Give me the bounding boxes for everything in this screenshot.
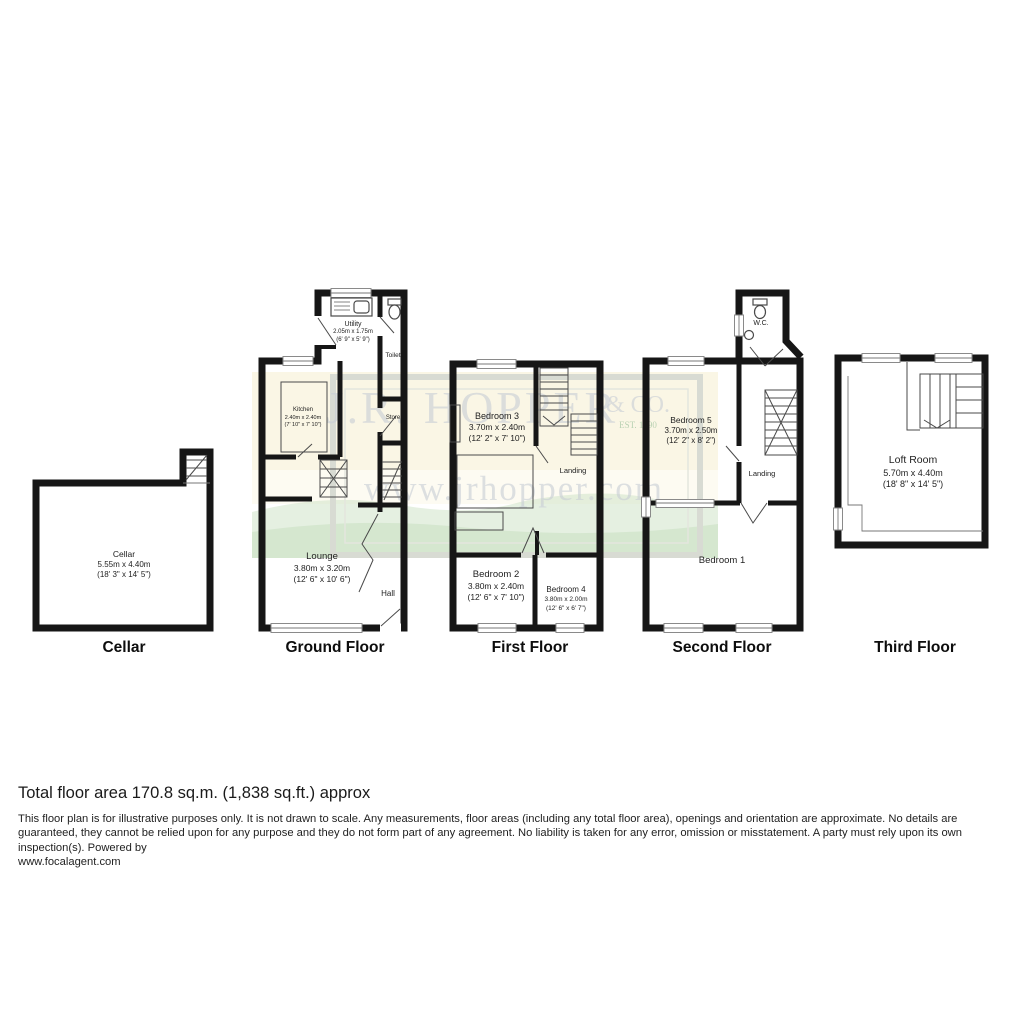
room-name: Toilet bbox=[385, 352, 400, 360]
floor-title-third: Third Floor bbox=[874, 639, 956, 657]
toilet-icon bbox=[388, 299, 401, 319]
third-floor-stairs-icon bbox=[907, 362, 983, 430]
room-imperial: (12' 6" x 7' 10") bbox=[467, 592, 524, 603]
room-imperial: (12' 6" x 6' 7") bbox=[545, 605, 588, 614]
floor-title-first: First Floor bbox=[492, 639, 569, 657]
room-imperial: (12' 2" x 7' 10") bbox=[468, 433, 525, 444]
third-floor-plan bbox=[834, 354, 986, 546]
wc-room-label: W.C. bbox=[753, 320, 768, 329]
cellar-plan bbox=[36, 452, 210, 628]
room-name: Hall bbox=[381, 589, 395, 599]
room-imperial: (12' 6" x 10' 6") bbox=[293, 574, 350, 585]
room-metric: 3.70m x 2.50m bbox=[665, 426, 718, 436]
room-name: Bedroom 3 bbox=[468, 411, 525, 422]
bedroom5-room-label: Bedroom 5 3.70m x 2.50m (12' 2" x 8' 2") bbox=[665, 415, 718, 446]
room-name: Utility bbox=[333, 320, 373, 329]
room-metric: 3.80m x 2.00m bbox=[545, 596, 588, 605]
room-name: Cellar bbox=[97, 549, 151, 560]
room-imperial: (18' 3" x 14' 5") bbox=[97, 570, 151, 580]
room-name: Loft Room bbox=[883, 454, 943, 468]
footer: Total floor area 170.8 sq.m. (1,838 sq.f… bbox=[18, 784, 1010, 869]
floorplan-page: J.R. HOPPER & CO. EST. 1890 www.jrhopper… bbox=[0, 0, 1024, 1024]
room-imperial: (12' 2" x 8' 2") bbox=[665, 436, 718, 446]
watermark-company-suffix: & CO. bbox=[606, 392, 670, 418]
room-metric: 3.70m x 2.40m bbox=[468, 422, 525, 433]
disclaimer-text: This floor plan is for illustrative purp… bbox=[18, 813, 962, 854]
front-door-opening bbox=[380, 624, 401, 633]
wc-toilet-icon bbox=[753, 299, 767, 319]
toilet-room-label: Toilet bbox=[385, 352, 400, 360]
room-name: Landing bbox=[749, 469, 776, 478]
bedroom1-room-label: Bedroom 1 bbox=[699, 555, 745, 567]
third-floor-windows bbox=[834, 354, 973, 531]
powered-by-url: www.focalagent.com bbox=[18, 856, 121, 868]
bedroom2-room-label: Bedroom 2 3.80m x 2.40m (12' 6" x 7' 10"… bbox=[467, 569, 524, 602]
bedroom4-room-label: Bedroom 4 3.80m x 2.00m (12' 6" x 6' 7") bbox=[545, 585, 588, 613]
room-imperial: (6' 9" x 5' 9") bbox=[333, 337, 373, 345]
utility-room-label: Utility 2.05m x 1.75m (6' 9" x 5' 9") bbox=[333, 320, 373, 345]
second-landing-label: Landing bbox=[749, 469, 776, 478]
floorplan-graphic: J.R. HOPPER & CO. EST. 1890 www.jrhopper… bbox=[0, 0, 1024, 1024]
room-name: Bedroom 2 bbox=[467, 569, 524, 581]
sink-icon bbox=[331, 298, 372, 316]
loft-room-label: Loft Room 5.70m x 4.40m (18' 8" x 14' 5"… bbox=[883, 454, 943, 491]
room-metric: 3.80m x 2.40m bbox=[467, 581, 524, 592]
floor-title-ground: Ground Floor bbox=[285, 639, 384, 657]
hall-room-label: Hall bbox=[381, 589, 395, 599]
room-name: Lounge bbox=[293, 551, 350, 563]
room-name: Kitchen bbox=[285, 407, 322, 415]
room-name: Store bbox=[386, 415, 400, 423]
first-landing-label: Landing bbox=[560, 466, 587, 475]
watermark-established: EST. 1890 bbox=[619, 420, 657, 430]
room-metric: 5.70m x 4.40m bbox=[883, 468, 943, 480]
room-name: W.C. bbox=[753, 320, 768, 329]
room-metric: 3.80m x 3.20m bbox=[293, 563, 350, 574]
room-metric: 2.05m x 1.75m bbox=[333, 329, 373, 337]
store-room-label: Store bbox=[386, 415, 400, 423]
back-door-opening bbox=[314, 316, 323, 345]
room-name: Bedroom 5 bbox=[665, 415, 718, 426]
room-imperial: (18' 8" x 14' 5") bbox=[883, 479, 943, 491]
floor-title-cellar: Cellar bbox=[102, 639, 145, 657]
room-name: Landing bbox=[560, 466, 587, 475]
cellar-stairs-icon bbox=[183, 455, 210, 483]
bedroom3-room-label: Bedroom 3 3.70m x 2.40m (12' 2" x 7' 10"… bbox=[468, 411, 525, 444]
watermark-url: www.jrhopper.com bbox=[364, 469, 664, 508]
floor-title-second: Second Floor bbox=[672, 639, 771, 657]
room-metric: 2.40m x 2.40m bbox=[285, 415, 322, 422]
lounge-room-label: Lounge 3.80m x 3.20m (12' 6" x 10' 6") bbox=[293, 551, 350, 584]
wc-basin-icon bbox=[745, 331, 754, 340]
room-imperial: (7' 10" x 7' 10") bbox=[285, 422, 322, 429]
second-floor-stairs-icon bbox=[765, 390, 797, 455]
cellar-room-label: Cellar 5.55m x 4.40m (18' 3" x 14' 5") bbox=[97, 549, 151, 580]
room-name: Bedroom 1 bbox=[699, 555, 745, 567]
kitchen-room-label: Kitchen 2.40m x 2.40m (7' 10" x 7' 10") bbox=[285, 407, 322, 429]
room-name: Bedroom 4 bbox=[545, 585, 588, 596]
total-floor-area: Total floor area 170.8 sq.m. (1,838 sq.f… bbox=[18, 784, 1010, 803]
room-metric: 5.55m x 4.40m bbox=[97, 560, 151, 570]
